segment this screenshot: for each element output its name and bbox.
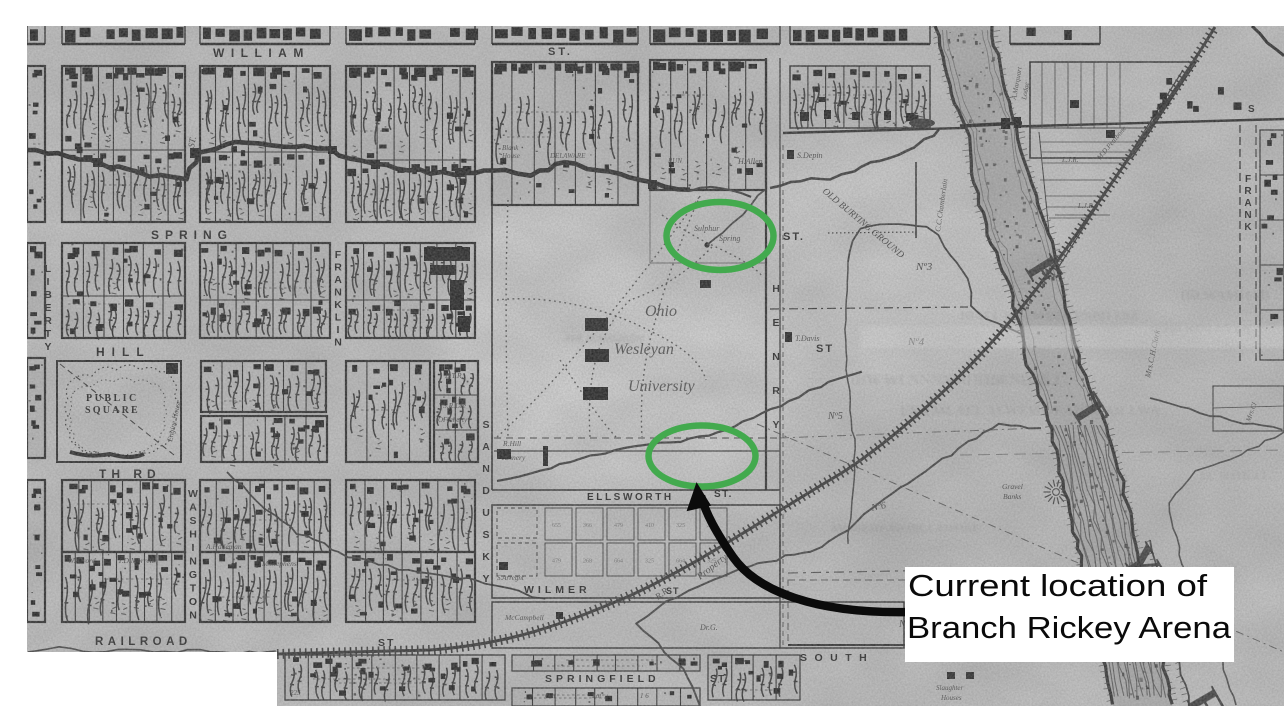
svg-text:Current location of: Current location of <box>908 568 1207 603</box>
svg-text:Branch Rickey Arena: Branch Rickey Arena <box>907 610 1232 645</box>
